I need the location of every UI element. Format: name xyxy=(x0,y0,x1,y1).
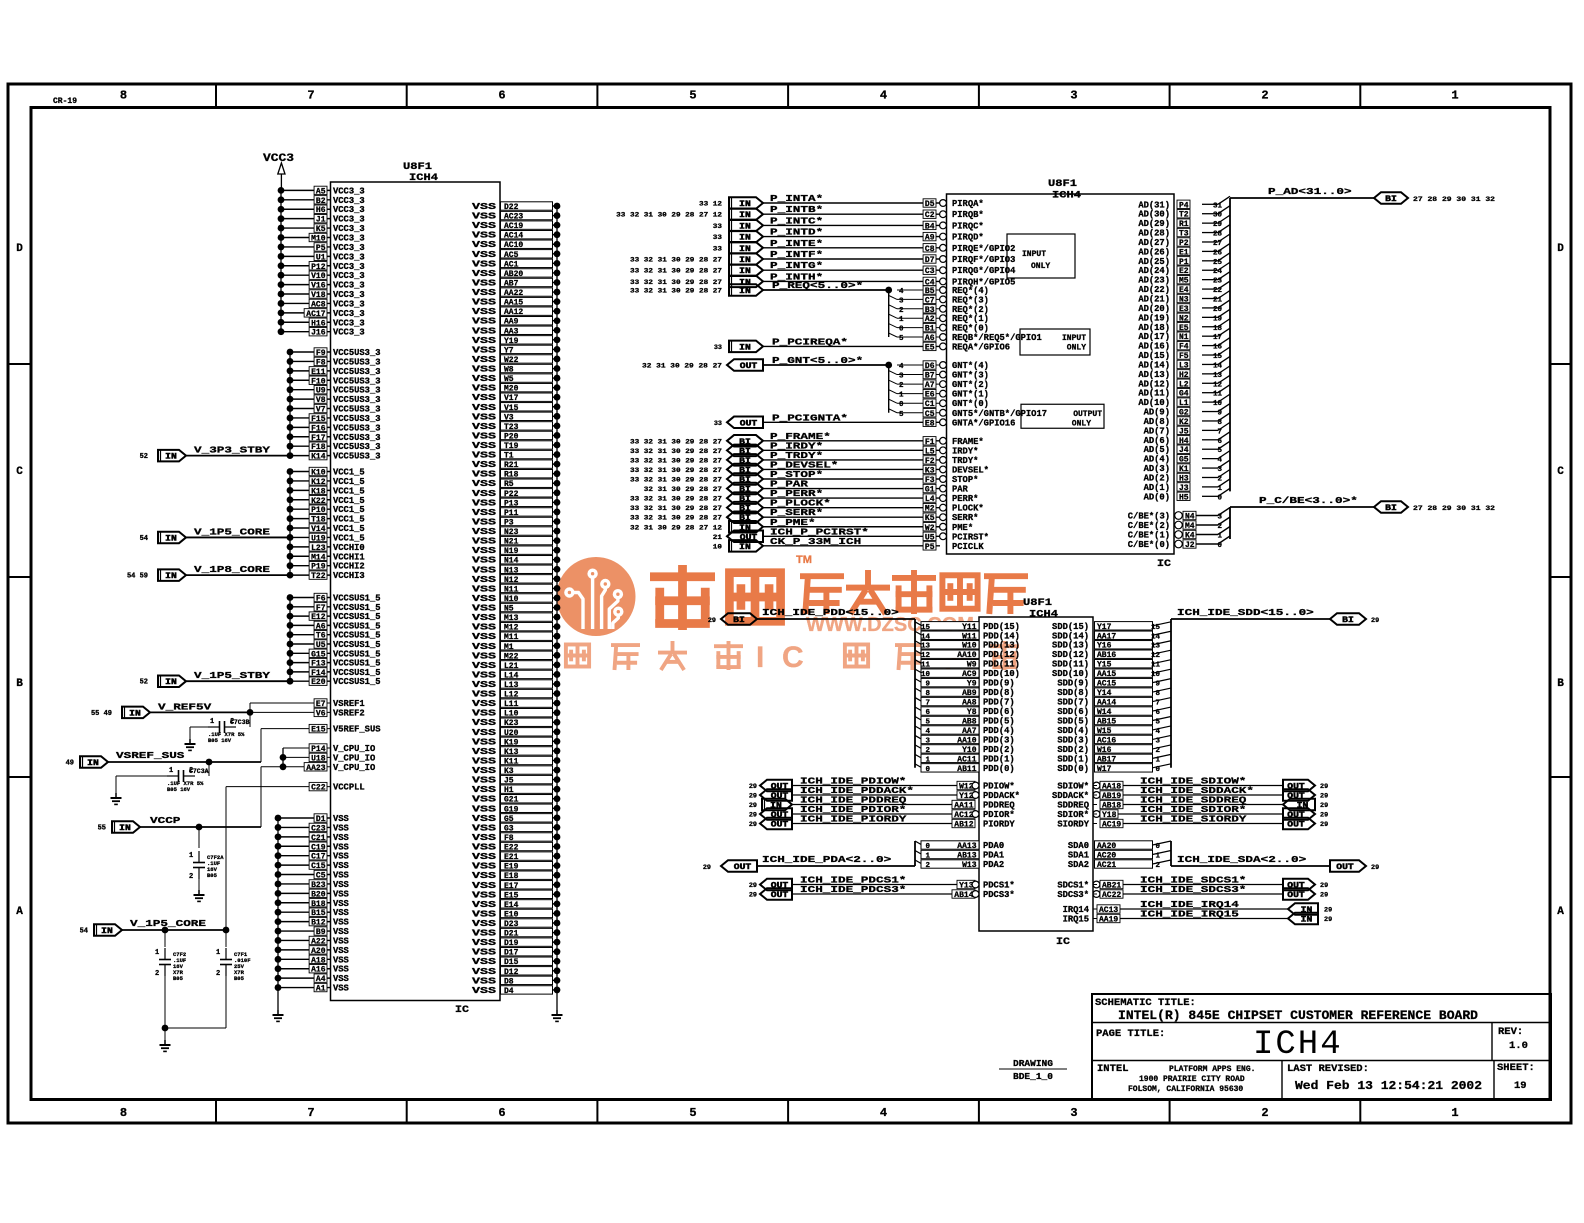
svg-text:C21: C21 xyxy=(311,834,326,843)
svg-text:G4: G4 xyxy=(1179,390,1189,399)
svg-text:VSS: VSS xyxy=(472,355,496,365)
svg-text:P2: P2 xyxy=(1179,239,1189,248)
svg-text:R1: R1 xyxy=(1179,220,1189,229)
svg-text:32 31 30 29 28 27: 32 31 30 29 28 27 xyxy=(644,486,722,494)
svg-text:VSS: VSS xyxy=(472,384,496,394)
svg-text:VSS: VSS xyxy=(472,900,496,910)
svg-text:FOLSOM, CALIFORNIA 95630: FOLSOM, CALIFORNIA 95630 xyxy=(1128,1085,1243,1094)
svg-text:VSS: VSS xyxy=(472,976,496,986)
svg-text:VSS: VSS xyxy=(472,489,496,499)
svg-text:IN: IN xyxy=(739,287,751,296)
svg-text:P11: P11 xyxy=(504,509,519,518)
svg-text:T23: T23 xyxy=(504,423,519,432)
svg-text:U5: U5 xyxy=(925,533,935,542)
svg-text:B12: B12 xyxy=(311,919,326,928)
svg-text:PAGE TITLE:: PAGE TITLE: xyxy=(1096,1028,1165,1040)
svg-text:C5: C5 xyxy=(925,410,935,419)
svg-text:E19: E19 xyxy=(504,863,519,872)
svg-text:SDDREQ: SDDREQ xyxy=(1057,801,1089,811)
svg-text:D12: D12 xyxy=(504,968,519,977)
svg-text:31: 31 xyxy=(1213,202,1223,210)
svg-text:VSS: VSS xyxy=(472,269,496,279)
svg-text:VSS: VSS xyxy=(472,843,496,853)
svg-text:VSS: VSS xyxy=(472,967,496,977)
svg-text:AB7: AB7 xyxy=(504,279,519,288)
svg-text:P_INTB*: P_INTB* xyxy=(770,204,823,215)
svg-text:VSS: VSS xyxy=(472,785,496,795)
svg-text:P_INTD*: P_INTD* xyxy=(770,227,823,238)
svg-text:24: 24 xyxy=(1213,268,1223,276)
svg-text:VSS: VSS xyxy=(472,537,496,547)
svg-text:PDA0: PDA0 xyxy=(983,841,1004,851)
svg-text:4: 4 xyxy=(899,288,904,296)
svg-text:E18: E18 xyxy=(504,872,519,881)
svg-text:Y7: Y7 xyxy=(504,346,514,355)
svg-text:U9: U9 xyxy=(316,387,326,396)
svg-text:E15: E15 xyxy=(504,891,519,900)
svg-text:A4: A4 xyxy=(316,975,326,984)
svg-text:N11: N11 xyxy=(504,585,519,594)
svg-text:5: 5 xyxy=(899,335,904,343)
svg-text:PIRQA*: PIRQA* xyxy=(952,199,984,209)
svg-text:VSS: VSS xyxy=(472,833,496,843)
svg-text:3: 3 xyxy=(899,297,904,305)
svg-text:INPUT: INPUT xyxy=(1062,334,1086,343)
svg-text:AA8: AA8 xyxy=(962,699,977,708)
svg-text:A: A xyxy=(16,906,23,918)
svg-text:VSS: VSS xyxy=(472,852,496,862)
svg-text:AC5: AC5 xyxy=(504,251,519,260)
svg-text:PDCS3*: PDCS3* xyxy=(983,890,1015,900)
svg-text:T3: T3 xyxy=(1179,230,1189,239)
svg-text:5: 5 xyxy=(899,411,904,419)
svg-text:VSS: VSS xyxy=(472,221,496,231)
svg-text:VSS: VSS xyxy=(472,604,496,614)
svg-text:N1: N1 xyxy=(1179,333,1189,342)
svg-text:27 28 29 30 31 32: 27 28 29 30 31 32 xyxy=(1413,505,1495,513)
svg-text:W16: W16 xyxy=(1097,746,1112,755)
svg-text:VSS: VSS xyxy=(472,556,496,566)
svg-text:D5: D5 xyxy=(925,200,935,209)
svg-text:VSS: VSS xyxy=(472,929,496,939)
svg-text:J16: J16 xyxy=(311,329,326,338)
svg-text:VSS: VSS xyxy=(472,890,496,900)
svg-text:F16: F16 xyxy=(311,424,326,433)
svg-text:V18: V18 xyxy=(311,291,326,300)
svg-text:0: 0 xyxy=(899,401,904,409)
svg-text:29: 29 xyxy=(1320,821,1328,829)
svg-text:ICH_IDE_SDA<2..0>: ICH_IDE_SDA<2..0> xyxy=(1177,854,1307,865)
svg-text:18: 18 xyxy=(1213,325,1223,333)
svg-text:F17: F17 xyxy=(311,434,326,443)
svg-text:G2: G2 xyxy=(1179,409,1189,418)
svg-text:BI: BI xyxy=(1342,616,1354,625)
svg-text:R18: R18 xyxy=(504,471,519,480)
svg-text:D1: D1 xyxy=(316,815,326,824)
svg-text:1: 1 xyxy=(189,852,193,860)
svg-text:VSS: VSS xyxy=(472,690,496,700)
svg-text:1: 1 xyxy=(899,316,904,324)
svg-text:P4: P4 xyxy=(1179,201,1189,210)
svg-text:VCC3_3: VCC3_3 xyxy=(333,328,365,338)
svg-text:PLOCK*: PLOCK* xyxy=(952,504,984,514)
svg-text:VSS: VSS xyxy=(472,670,496,680)
svg-text:VSREF2: VSREF2 xyxy=(333,708,365,718)
svg-text:V15: V15 xyxy=(504,404,519,413)
svg-text:22: 22 xyxy=(1213,287,1223,295)
svg-text:U18: U18 xyxy=(311,754,326,763)
svg-text:C15: C15 xyxy=(311,862,326,871)
svg-text:H4: H4 xyxy=(1179,437,1189,446)
svg-text:D21: D21 xyxy=(504,930,519,939)
svg-text:K3: K3 xyxy=(504,767,514,776)
svg-text:B9: B9 xyxy=(316,928,326,937)
svg-text:AB9: AB9 xyxy=(962,689,977,698)
svg-text:L13: L13 xyxy=(504,681,519,690)
svg-text:IRQ15: IRQ15 xyxy=(1063,915,1089,925)
svg-text:P13: P13 xyxy=(504,499,519,508)
svg-text:B1: B1 xyxy=(925,325,935,334)
svg-text:IN: IN xyxy=(119,824,131,833)
svg-text:1: 1 xyxy=(210,718,214,726)
svg-text:VSS: VSS xyxy=(472,508,496,518)
svg-text:SDA0: SDA0 xyxy=(1068,841,1089,851)
svg-text:PIRQE*/GPIO2: PIRQE*/GPIO2 xyxy=(952,244,1015,254)
svg-text:2: 2 xyxy=(899,307,904,315)
svg-text:V10: V10 xyxy=(311,272,326,281)
svg-text:N3: N3 xyxy=(1179,296,1189,305)
svg-text:1: 1 xyxy=(925,853,930,861)
svg-text:AB13: AB13 xyxy=(957,852,976,861)
svg-text:VSS: VSS xyxy=(472,326,496,336)
svg-text:VSS: VSS xyxy=(472,527,496,537)
svg-text:PIRQD*: PIRQD* xyxy=(952,233,984,243)
svg-text:Y11: Y11 xyxy=(962,623,977,632)
svg-text:VSS: VSS xyxy=(472,823,496,833)
svg-text:L12: L12 xyxy=(504,691,519,700)
svg-text:33: 33 xyxy=(713,234,722,242)
svg-text:FRAME*: FRAME* xyxy=(952,437,984,447)
svg-text:29: 29 xyxy=(1320,882,1328,890)
svg-text:VSS: VSS xyxy=(472,651,496,661)
svg-text:CR-19: CR-19 xyxy=(53,97,77,106)
svg-text:C: C xyxy=(16,466,23,478)
svg-text:AB21: AB21 xyxy=(1102,882,1121,891)
svg-text:29: 29 xyxy=(1320,812,1328,820)
svg-text:OUT: OUT xyxy=(1287,821,1304,830)
svg-text:E2: E2 xyxy=(1179,267,1189,276)
svg-text:Y9: Y9 xyxy=(967,680,977,689)
svg-text:29: 29 xyxy=(1320,783,1328,791)
svg-text:E22: E22 xyxy=(504,844,519,853)
svg-text:PDCS1*: PDCS1* xyxy=(983,881,1015,891)
svg-text:W12: W12 xyxy=(959,783,974,792)
svg-text:IN: IN xyxy=(165,572,177,581)
svg-text:PME*: PME* xyxy=(952,523,973,533)
svg-text:E17: E17 xyxy=(504,882,519,891)
svg-text:VSS: VSS xyxy=(472,948,496,958)
svg-text:G21: G21 xyxy=(504,796,519,805)
svg-text:VSS: VSS xyxy=(333,984,349,994)
svg-text:OUT: OUT xyxy=(740,362,757,371)
svg-text:29: 29 xyxy=(1320,793,1328,801)
svg-text:OUT: OUT xyxy=(771,891,788,900)
svg-text:AB20: AB20 xyxy=(504,270,523,279)
svg-text:10: 10 xyxy=(713,543,722,551)
svg-text:A1: A1 xyxy=(316,985,326,994)
svg-text:L3: L3 xyxy=(1179,361,1189,370)
svg-text:P5: P5 xyxy=(925,543,935,552)
svg-text:1: 1 xyxy=(1451,1106,1458,1120)
svg-text:PAR: PAR xyxy=(952,485,969,495)
svg-text:V_1P5_CORE: V_1P5_CORE xyxy=(130,918,207,929)
svg-text:PLATFORM APPS ENG.: PLATFORM APPS ENG. xyxy=(1169,1065,1255,1074)
svg-text:PDDREQ: PDDREQ xyxy=(983,801,1015,811)
svg-text:K1: K1 xyxy=(1179,465,1189,474)
svg-text:AC16: AC16 xyxy=(1097,736,1116,745)
svg-text:VSS: VSS xyxy=(472,240,496,250)
svg-text:P_INTF*: P_INTF* xyxy=(770,249,823,260)
svg-text:E3: E3 xyxy=(1179,305,1189,314)
svg-text:G19: G19 xyxy=(504,805,519,814)
svg-text:VSS: VSS xyxy=(472,756,496,766)
svg-text:IRQ14: IRQ14 xyxy=(1063,905,1090,915)
svg-text:T2: T2 xyxy=(1179,211,1189,220)
svg-text:SDIOR*: SDIOR* xyxy=(1057,810,1089,820)
svg-text:VCC5US3_3: VCC5US3_3 xyxy=(333,452,381,462)
svg-text:54 59: 54 59 xyxy=(127,573,148,581)
svg-text:16: 16 xyxy=(1213,344,1223,352)
svg-text:VSREF_SUS: VSREF_SUS xyxy=(116,750,185,761)
svg-text:AB19: AB19 xyxy=(1102,792,1121,801)
svg-text:VSS: VSS xyxy=(472,412,496,422)
svg-text:L21: L21 xyxy=(504,662,519,671)
svg-text:B: B xyxy=(16,678,23,690)
svg-text:J2: J2 xyxy=(1185,541,1195,550)
svg-text:D: D xyxy=(1557,243,1564,255)
svg-text:VSS: VSS xyxy=(472,231,496,241)
svg-text:ONLY: ONLY xyxy=(1072,419,1091,428)
svg-text:33 32 31 30 29 28 27: 33 32 31 30 29 28 27 xyxy=(630,496,722,504)
svg-text:V_1P8_CORE: V_1P8_CORE xyxy=(194,564,271,575)
svg-text:A5: A5 xyxy=(316,187,326,196)
svg-text:AA13: AA13 xyxy=(957,842,976,851)
svg-text:AC1: AC1 xyxy=(504,260,519,269)
svg-text:P19: P19 xyxy=(311,563,326,572)
svg-text:33 12: 33 12 xyxy=(699,201,722,209)
svg-text:AB15: AB15 xyxy=(1097,718,1116,727)
svg-text:VSS: VSS xyxy=(472,336,496,346)
svg-text:VSS: VSS xyxy=(472,728,496,738)
svg-text:D4: D4 xyxy=(504,987,514,996)
svg-text:AB14: AB14 xyxy=(954,891,973,900)
svg-text:VSS: VSS xyxy=(472,365,496,375)
svg-text:AC22: AC22 xyxy=(1102,891,1121,900)
svg-text:ONLY: ONLY xyxy=(1067,343,1086,352)
svg-text:M13: M13 xyxy=(504,614,519,623)
svg-text:A20: A20 xyxy=(311,947,326,956)
svg-text:2: 2 xyxy=(1261,89,1268,103)
svg-text:21: 21 xyxy=(713,534,722,542)
svg-text:IC: IC xyxy=(455,1005,469,1016)
svg-text:33: 33 xyxy=(714,420,722,428)
svg-text:IN: IN xyxy=(129,709,141,718)
svg-text:M22: M22 xyxy=(504,652,519,661)
svg-text:N14: N14 xyxy=(504,557,519,566)
svg-text:OUT: OUT xyxy=(1336,863,1353,872)
svg-text:A9: A9 xyxy=(925,234,935,243)
svg-text:G1: G1 xyxy=(925,486,935,495)
svg-text:H6: H6 xyxy=(316,206,326,215)
svg-text:AC20: AC20 xyxy=(1097,852,1116,861)
svg-text:VSS: VSS xyxy=(472,393,496,403)
svg-text:1900 PRAIRIE CITY ROAD: 1900 PRAIRIE CITY ROAD xyxy=(1139,1075,1245,1084)
svg-text:PERR*: PERR* xyxy=(952,494,978,504)
svg-text:K23: K23 xyxy=(504,719,519,728)
svg-text:INPUT: INPUT xyxy=(1022,250,1046,259)
svg-text:INTEL(R) 845E CHIPSET CUSTOMER: INTEL(R) 845E CHIPSET CUSTOMER REFERENCE… xyxy=(1118,1009,1479,1023)
svg-text:33 32 31 30 29 28 27: 33 32 31 30 29 28 27 xyxy=(630,438,722,446)
svg-text:15: 15 xyxy=(1213,353,1223,361)
svg-text:VSS: VSS xyxy=(472,298,496,308)
svg-text:VSS: VSS xyxy=(472,957,496,967)
svg-text:29: 29 xyxy=(708,617,716,625)
svg-text:29: 29 xyxy=(1371,864,1379,872)
svg-text:C1: C1 xyxy=(925,400,935,409)
svg-text:PDIOR*: PDIOR* xyxy=(983,810,1015,820)
svg-text:VSS: VSS xyxy=(472,699,496,709)
svg-text:2: 2 xyxy=(925,862,930,870)
svg-text:VSS: VSS xyxy=(472,278,496,288)
svg-text:L1: L1 xyxy=(1179,399,1189,408)
svg-text:G5: G5 xyxy=(1179,456,1189,465)
svg-text:E5: E5 xyxy=(925,343,935,352)
svg-text:W17: W17 xyxy=(1097,765,1112,774)
svg-text:VSS: VSS xyxy=(472,632,496,642)
svg-text:B3: B3 xyxy=(925,306,935,315)
svg-text:AA23: AA23 xyxy=(306,764,325,773)
svg-text:VSS: VSS xyxy=(472,212,496,222)
svg-text:49: 49 xyxy=(66,760,74,768)
svg-text:F15: F15 xyxy=(311,415,326,424)
svg-text:ICH4: ICH4 xyxy=(1029,610,1058,621)
svg-text:VSS: VSS xyxy=(472,766,496,776)
svg-text:E12: E12 xyxy=(311,613,326,622)
svg-text:4: 4 xyxy=(899,363,904,371)
svg-text:K13: K13 xyxy=(504,748,519,757)
svg-text:VCCP: VCCP xyxy=(150,815,181,826)
svg-text:PDIOW*: PDIOW* xyxy=(983,782,1015,792)
svg-text:VSS: VSS xyxy=(472,737,496,747)
svg-text:J5: J5 xyxy=(1179,427,1189,436)
svg-text:VSS: VSS xyxy=(472,250,496,260)
svg-text:W11: W11 xyxy=(962,632,977,641)
svg-text:33 32 31 30 29 28 27: 33 32 31 30 29 28 27 xyxy=(630,515,722,523)
svg-text:VSS: VSS xyxy=(472,584,496,594)
svg-text:AC9: AC9 xyxy=(962,670,977,679)
svg-text:P_INTC*: P_INTC* xyxy=(770,215,823,226)
svg-text:VSS: VSS xyxy=(472,470,496,480)
svg-text:IN: IN xyxy=(87,759,99,768)
svg-text:VSS: VSS xyxy=(472,441,496,451)
svg-text:AC13: AC13 xyxy=(1099,906,1118,915)
svg-text:F2: F2 xyxy=(925,457,935,466)
svg-text:GNT*(1): GNT*(1) xyxy=(952,390,989,400)
svg-text:T22: T22 xyxy=(311,572,326,581)
svg-text:VSS: VSS xyxy=(472,623,496,633)
svg-text:0: 0 xyxy=(925,766,930,774)
svg-text:P_AD<31..0>: P_AD<31..0> xyxy=(1268,186,1352,197)
svg-text:F8: F8 xyxy=(504,834,514,843)
svg-text:K5: K5 xyxy=(316,225,326,234)
svg-text:D23: D23 xyxy=(504,920,519,929)
svg-text:VSS: VSS xyxy=(472,202,496,212)
svg-text:SDCS3*: SDCS3* xyxy=(1057,890,1089,900)
svg-text:0: 0 xyxy=(899,326,904,334)
svg-text:PDDACK*: PDDACK* xyxy=(983,791,1020,801)
svg-text:11: 11 xyxy=(1213,391,1223,399)
svg-text:F1: F1 xyxy=(925,438,935,447)
svg-text:L4: L4 xyxy=(925,495,935,504)
svg-text:L2: L2 xyxy=(1179,380,1189,389)
svg-text:J5: J5 xyxy=(504,777,514,786)
svg-text:33 32 31 30 29 28 27: 33 32 31 30 29 28 27 xyxy=(630,268,722,276)
svg-text:VSS: VSS xyxy=(472,986,496,996)
svg-text:AC11: AC11 xyxy=(957,755,976,764)
svg-text:PDA2: PDA2 xyxy=(983,860,1004,870)
svg-text:SDA1: SDA1 xyxy=(1068,851,1089,861)
svg-text:GNT*(4): GNT*(4) xyxy=(952,361,989,371)
svg-text:K12: K12 xyxy=(311,478,326,487)
svg-text:IN: IN xyxy=(165,678,177,687)
svg-text:TRDY*: TRDY* xyxy=(952,456,978,466)
svg-text:A18: A18 xyxy=(311,956,326,965)
svg-text:AC17: AC17 xyxy=(306,310,325,319)
svg-text:T1: T1 xyxy=(504,452,514,461)
svg-text:B05 16V: B05 16V xyxy=(167,786,191,793)
svg-text:D19: D19 xyxy=(504,939,519,948)
svg-text:VSS: VSS xyxy=(472,680,496,690)
svg-text:N19: N19 xyxy=(504,547,519,556)
svg-text:W10: W10 xyxy=(962,642,977,651)
svg-text:AC12: AC12 xyxy=(954,811,973,820)
svg-text:B05 16V: B05 16V xyxy=(208,737,232,744)
svg-text:G5: G5 xyxy=(504,815,514,824)
svg-text:29: 29 xyxy=(749,812,757,820)
svg-text:ONLY: ONLY xyxy=(1031,262,1050,271)
svg-text:VSS: VSS xyxy=(472,403,496,413)
svg-text:IN: IN xyxy=(739,543,751,552)
svg-text:PIRQF*/GPIO3: PIRQF*/GPIO3 xyxy=(952,255,1015,265)
svg-text:19: 19 xyxy=(1213,315,1223,323)
svg-text:SIORDY: SIORDY xyxy=(1057,820,1089,830)
svg-text:VSS: VSS xyxy=(472,422,496,432)
svg-text:PIRQB*: PIRQB* xyxy=(952,210,984,220)
svg-text:M12: M12 xyxy=(504,624,519,633)
svg-text:AA17: AA17 xyxy=(1097,632,1116,641)
svg-text:Y15: Y15 xyxy=(1097,661,1112,670)
svg-text:B18: B18 xyxy=(311,900,326,909)
svg-text:2: 2 xyxy=(155,970,159,978)
svg-text:VSS: VSS xyxy=(472,862,496,872)
svg-text:BI: BI xyxy=(1385,195,1397,204)
svg-text:AA20: AA20 xyxy=(1097,842,1116,851)
svg-text:21: 21 xyxy=(1213,297,1223,305)
svg-text:8: 8 xyxy=(120,1106,127,1120)
svg-text:C/BE*(3): C/BE*(3) xyxy=(1128,512,1170,522)
svg-text:N23: N23 xyxy=(504,528,519,537)
svg-text:GNT*(0): GNT*(0) xyxy=(952,399,989,409)
